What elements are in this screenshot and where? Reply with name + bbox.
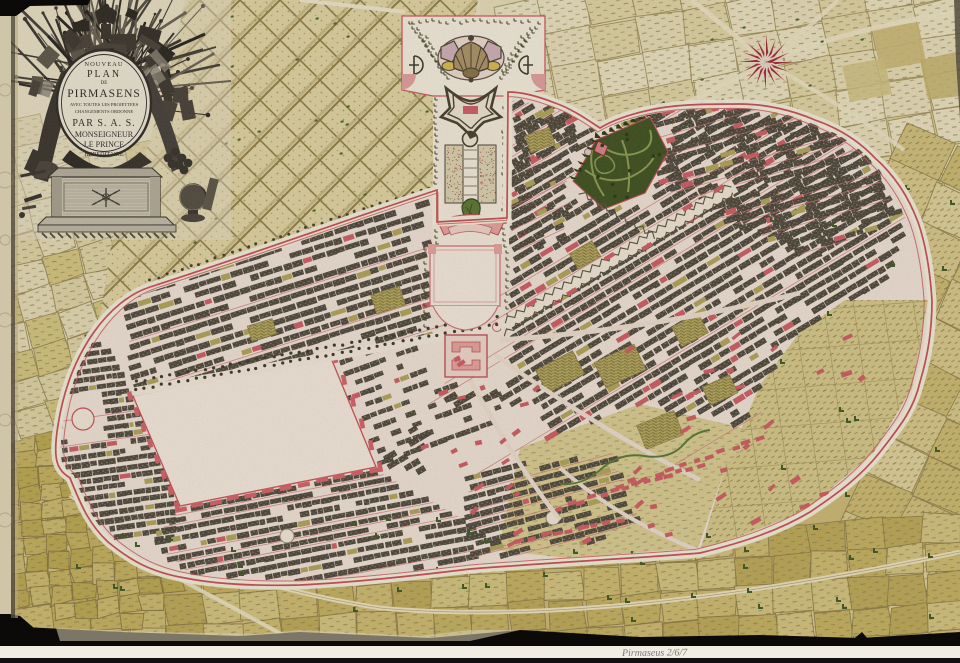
svg-text:Pirmaseus 2/6/7: Pirmaseus 2/6/7: [621, 647, 688, 658]
